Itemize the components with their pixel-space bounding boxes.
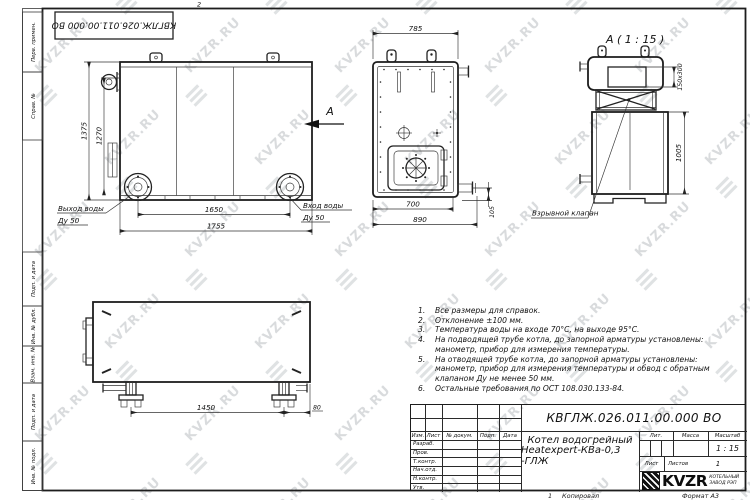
tb-scale-label: Масштаб <box>708 431 747 440</box>
dim-side-w1: 700 <box>406 200 420 209</box>
inlet-label: Вход воды <box>303 201 343 210</box>
support-leg-right <box>272 382 307 407</box>
explosion-valve-label: Взрывной клапан <box>532 209 599 218</box>
tb-header-col: Изм. <box>411 431 425 440</box>
dim-side-top: 785 <box>409 24 423 33</box>
note-number: 2. <box>418 316 435 326</box>
margin-label: Инв. № дубл. <box>31 308 37 344</box>
side-stubs <box>458 66 476 195</box>
burner-flange <box>388 146 447 190</box>
top-stamp-box: КВГЛЖ.026.011.00.000 ВО <box>52 12 177 39</box>
water-inlet-flange <box>277 174 304 201</box>
dim-front-height-outer: 1375 <box>80 121 89 140</box>
kvzr-company-line1: КОТЕЛЬНЫЙ <box>709 475 739 480</box>
note-text: На отводящей трубе котла, до запорной ар… <box>435 355 710 384</box>
view-a-arrow: А <box>304 105 344 128</box>
margin-label: Подп. и дата <box>31 394 37 430</box>
tb-header-col: Лист <box>425 431 442 440</box>
title-block: КВГЛЖ.026.011.00.000 ВО Котел водогрейны… <box>410 404 746 491</box>
kvzr-logo-icon <box>642 472 660 490</box>
tb-role-row: Н.контр. <box>411 475 444 484</box>
water-outlet-flange <box>125 174 152 201</box>
perimeter-bolts <box>380 69 452 191</box>
note-item: 2.Отклонение ±100 мм. <box>418 316 742 326</box>
tb-role-row: Разраб. <box>411 440 444 449</box>
note-text: Все размеры для справок. <box>435 306 540 316</box>
corner-marks <box>102 311 301 373</box>
tb-sheets-value: 1 <box>711 456 725 471</box>
zone-number-bottom: 1 <box>548 492 552 500</box>
kvzr-company-line2: ЗАВОД РЭП <box>709 481 739 486</box>
margin-label: Инв. № подл. <box>31 448 37 485</box>
tb-sheet-label: Лист <box>639 456 664 471</box>
explosion-valve-callout: Взрывной клапан <box>531 98 630 218</box>
note-item: 4.На подводящей трубе котла, до запорной… <box>418 335 742 354</box>
margin-label: Перв. примен. <box>31 22 37 62</box>
side-view: 785 700 890 105 <box>373 24 496 228</box>
margin-label: Справ. № <box>31 93 37 119</box>
plan-view: 1450 80 <box>83 302 323 417</box>
detail-view-title: А ( 1 : 15 ) <box>605 33 664 46</box>
dim-detail-hatch: 150x300 <box>677 63 684 90</box>
note-number: 1. <box>418 306 435 316</box>
dim-plan-width: 1450 <box>197 403 216 412</box>
note-text: Температура воды на входе 70°С, на выход… <box>435 325 639 335</box>
front-view: 1375 1270 1650 1755 Выход воды Ду 50 <box>57 53 352 235</box>
margin-label: Подп. и дата <box>31 261 37 297</box>
note-item: 6.Остальные требования по ОСТ 108.030.13… <box>418 384 742 394</box>
margin-label: Взам. инв. № <box>31 347 37 383</box>
note-text: Отклонение ±100 мм. <box>435 316 523 326</box>
tb-role-row: Т.контр. <box>411 457 444 466</box>
plan-left-bracket <box>83 318 93 365</box>
tb-mass-label: Масса <box>673 431 708 440</box>
tb-sheets-label: Листов <box>666 456 698 471</box>
tb-brand: KVZR КОТЕЛЬНЫЙ ЗАВОД РЭП <box>640 471 746 490</box>
kvzr-logo-text: KVZR <box>662 472 707 490</box>
drawing-sheet: ≡KVZR.RU≡KVZR.RU≡KVZR.RU≡KVZR.RU≡KVZR.RU… <box>0 0 750 500</box>
outlet-label: Выход воды <box>58 204 104 213</box>
note-text: На подводящей трубе котла, до запорной а… <box>435 335 704 354</box>
dim-plan-offset: 80 <box>313 405 321 412</box>
top-stamp-doc-number: КВГЛЖ.026.011.00.000 ВО <box>52 20 177 30</box>
center-ports <box>396 125 441 141</box>
note-item: 5.На отводящей трубе котла, до запорной … <box>418 355 742 384</box>
dim-side-h: 105 <box>489 206 496 218</box>
tb-lit-label: Лит. <box>639 431 673 440</box>
note-text: Остальные требования по ОСТ 108.030.133-… <box>435 384 624 394</box>
tb-role-row: Пров. <box>411 449 444 458</box>
note-item: 1.Все размеры для справок. <box>418 306 742 316</box>
kvzr-company-name: КОТЕЛЬНЫЙ ЗАВОД РЭП <box>709 475 739 485</box>
view-a-letter: А <box>325 105 334 118</box>
note-number: 5. <box>418 355 435 384</box>
tb-header-col: Дата <box>499 431 521 440</box>
tb-header-col: № докум. <box>442 431 477 440</box>
dim-front-width-outer: 1755 <box>207 222 226 231</box>
inlet-size-label: Ду 50 <box>302 213 325 222</box>
dim-front-width-inner: 1650 <box>205 205 224 214</box>
tb-product-model: Heatexpert-КВа-0,3 -ГЛЖ <box>521 448 639 463</box>
tb-role-row: Нач.отд. <box>411 466 444 475</box>
tb-doc-number: КВГЛЖ.026.011.00.000 ВО <box>521 405 747 431</box>
tb-scale-value: 1 : 15 <box>708 440 747 456</box>
footer-copy-label: Копировал <box>562 492 599 500</box>
notes-list: 1.Все размеры для справок.2.Отклонение ±… <box>418 306 742 393</box>
outlet-callout: Выход воды Ду 50 <box>57 196 130 225</box>
tb-header-col: Подп. <box>477 431 499 440</box>
note-number: 6. <box>418 384 435 394</box>
support-leg-left <box>103 382 143 407</box>
detail-view-a: А ( 1 : 15 ) <box>531 33 689 218</box>
explosion-valve <box>596 90 656 110</box>
dim-detail-height: 1005 <box>674 143 683 162</box>
outlet-size-label: Ду 50 <box>57 216 80 225</box>
tb-role-row: Утв. <box>411 483 444 492</box>
dim-front-height-inner: 1270 <box>95 126 104 145</box>
note-number: 3. <box>418 325 435 335</box>
note-item: 3.Температура воды на входе 70°С, на вых… <box>418 325 742 335</box>
note-number: 4. <box>418 335 435 354</box>
dim-side-w2: 890 <box>413 215 427 224</box>
zone-number-top: 2 <box>197 1 201 9</box>
footer-format-label: Формат А3 <box>682 492 719 500</box>
